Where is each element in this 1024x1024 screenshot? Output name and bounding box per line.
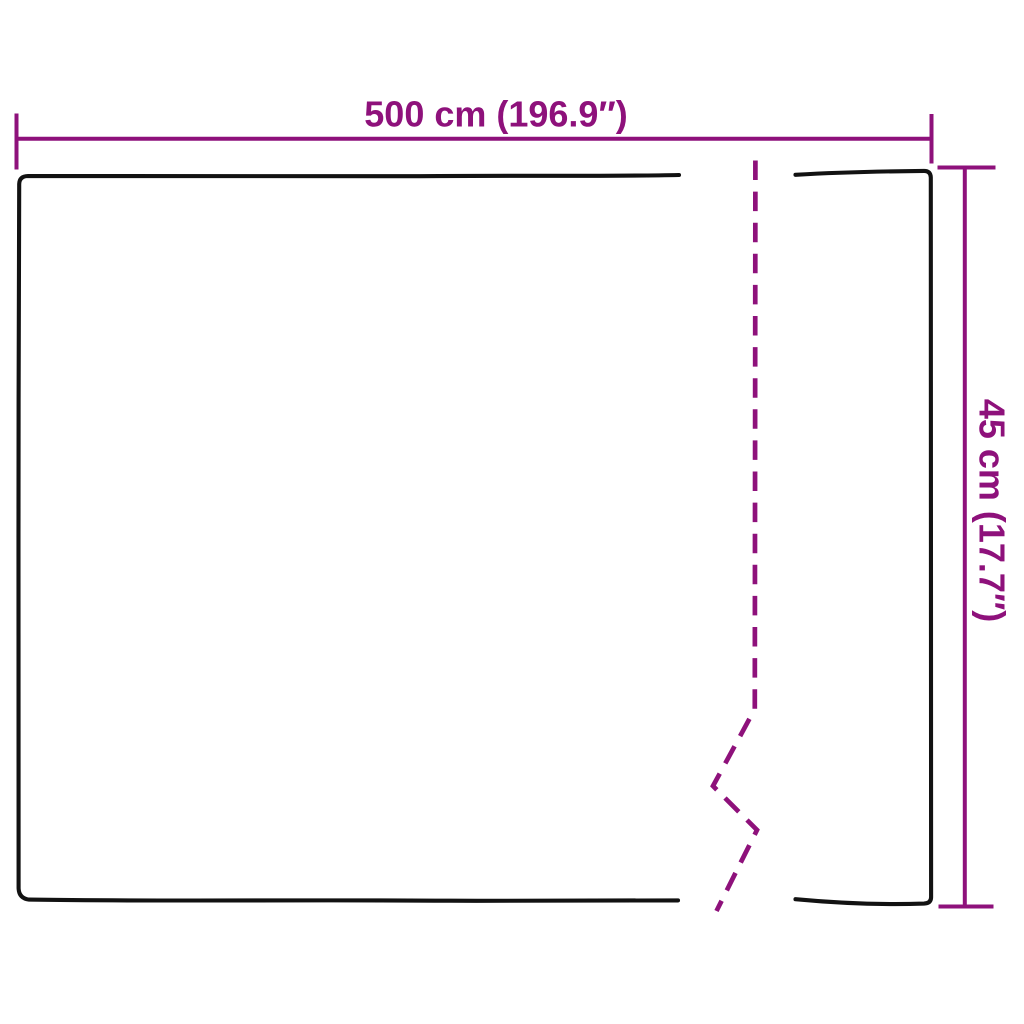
svg-text:500 cm (196.9″): 500 cm (196.9″) [364,94,627,135]
svg-text:45 cm (17.7″): 45 cm (17.7″) [972,399,1013,622]
